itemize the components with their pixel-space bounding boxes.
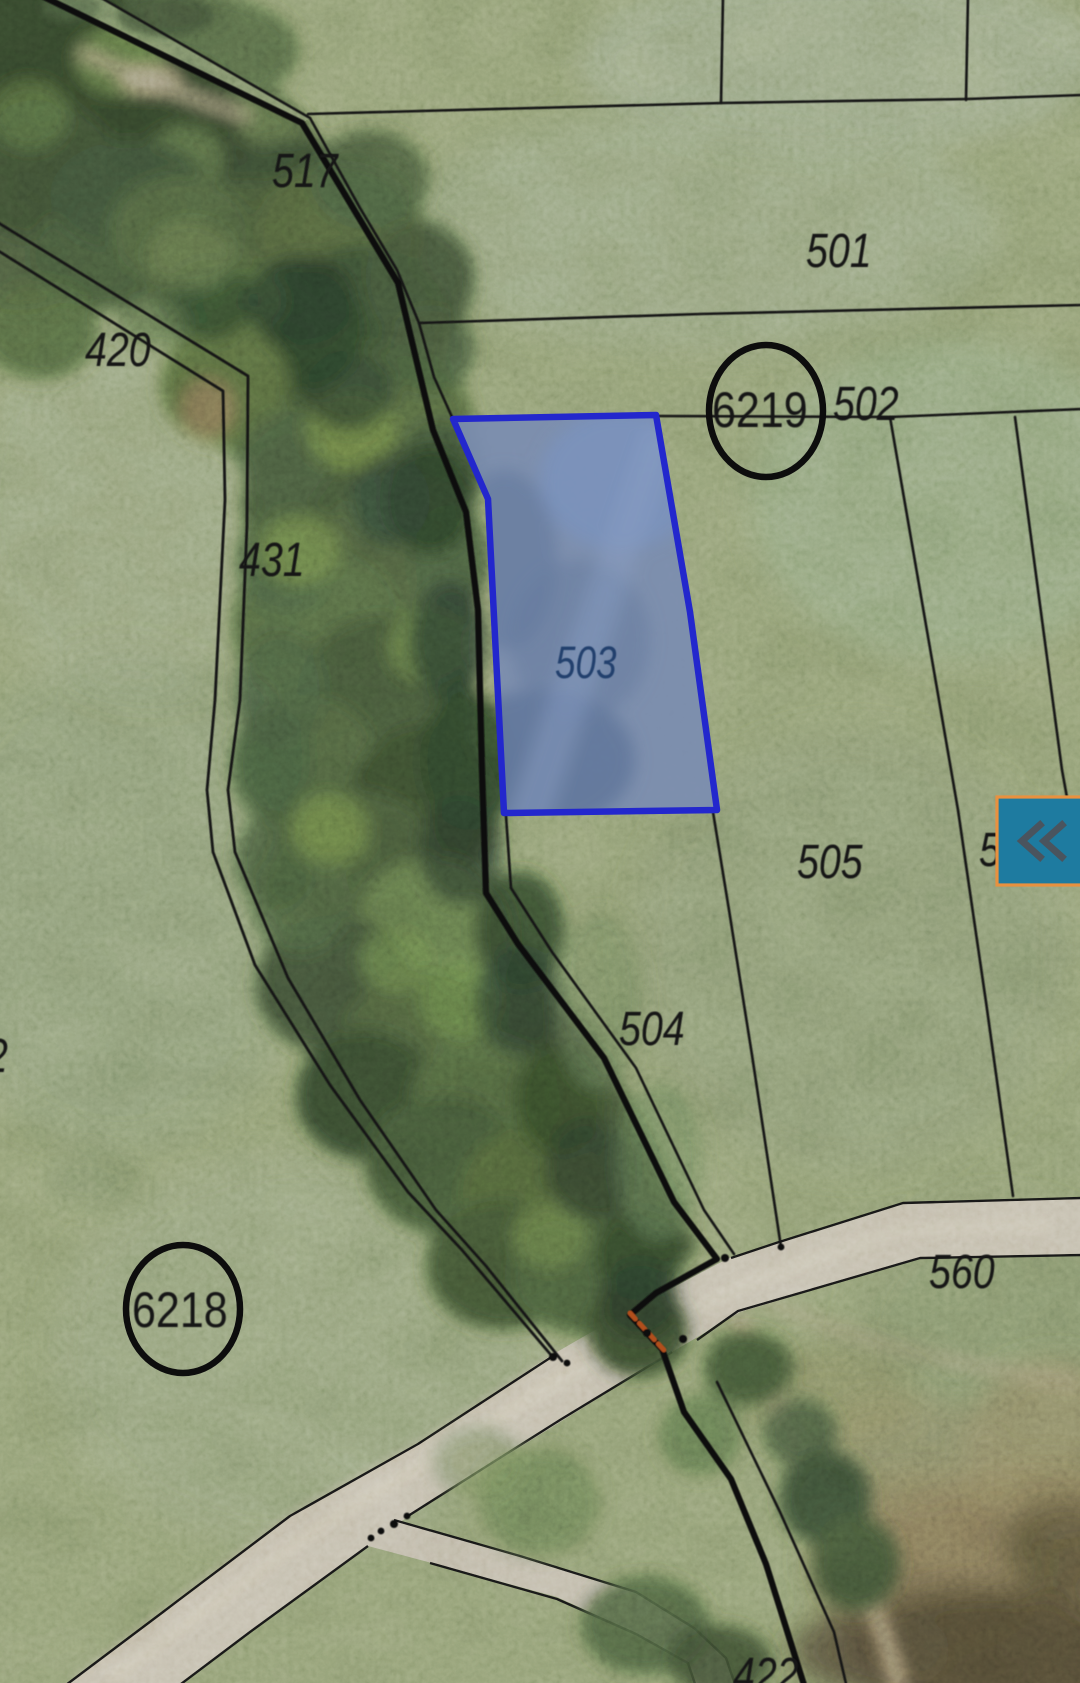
svg-text:420: 420 — [85, 323, 151, 377]
svg-text:517: 517 — [272, 144, 339, 198]
svg-text:2: 2 — [0, 1029, 8, 1083]
svg-text:6219: 6219 — [712, 382, 808, 438]
svg-text:505: 505 — [797, 835, 863, 889]
svg-text:431: 431 — [239, 533, 305, 587]
svg-text:504: 504 — [619, 1002, 685, 1056]
svg-text:503: 503 — [555, 638, 617, 688]
svg-text:501: 501 — [806, 224, 872, 278]
svg-text:560: 560 — [929, 1245, 995, 1299]
svg-text:6218: 6218 — [132, 1282, 228, 1338]
svg-text:422: 422 — [733, 1648, 799, 1683]
svg-text:502: 502 — [833, 377, 899, 431]
